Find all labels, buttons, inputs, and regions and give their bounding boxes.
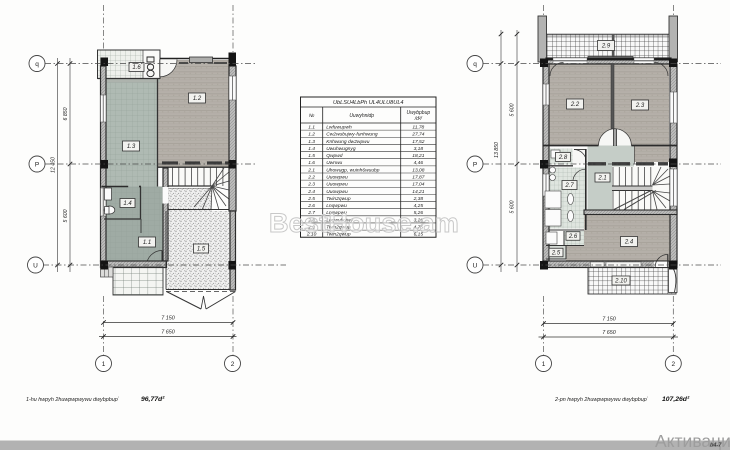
svg-text:2.9: 2.9 <box>601 44 611 50</box>
svg-text:2.2: 2.2 <box>570 102 580 108</box>
svg-text:Uuowpwu: Uuowpwu <box>326 174 348 180</box>
svg-text:1.6: 1.6 <box>132 65 141 71</box>
svg-text:5 600: 5 600 <box>510 200 516 213</box>
svg-text:14,21: 14,21 <box>412 189 425 195</box>
svg-text:1.4: 1.4 <box>308 146 315 152</box>
svg-text:1-hu hwpyh 2huwpwpwywu dwybpb: 1-hu hwpyh 2huwpwpwywu dwybpbup` <box>26 397 120 403</box>
svg-text:2.8: 2.8 <box>558 155 568 161</box>
svg-text:2.6: 2.6 <box>568 234 578 240</box>
svg-text:1.6: 1.6 <box>308 160 315 166</box>
svg-text:P: P <box>35 161 39 168</box>
svg-text:1.3: 1.3 <box>127 144 136 150</box>
svg-text:13 850: 13 850 <box>494 142 500 158</box>
svg-text:q: q <box>473 61 477 68</box>
svg-text:Uuowpwu: Uuowpwu <box>326 189 348 195</box>
svg-text:Qwpwd: Qwpwd <box>326 153 343 159</box>
svg-text:U: U <box>473 262 478 269</box>
svg-text:1.2: 1.2 <box>193 96 202 102</box>
svg-text:2.3: 2.3 <box>635 103 645 109</box>
svg-text:1: 1 <box>102 361 106 368</box>
svg-text:107,26d²: 107,26d² <box>662 396 690 403</box>
svg-text:13,08: 13,08 <box>412 167 425 173</box>
svg-text:2-pn hwpyh 2huwpwpwywu dwybpb: 2-pn hwpyh 2huwpwpwywu dwybpbup` <box>554 397 649 403</box>
svg-text:№: № <box>309 113 315 119</box>
svg-text:1.5: 1.5 <box>308 153 315 159</box>
svg-text:4,46: 4,46 <box>414 160 424 166</box>
svg-text:2.7: 2.7 <box>564 183 574 189</box>
svg-text:Uuwyhnidp: Uuwyhnidp <box>349 113 374 119</box>
svg-text:7 150: 7 150 <box>161 316 175 322</box>
svg-text:2.4: 2.4 <box>307 189 315 195</box>
svg-text:12 450: 12 450 <box>51 157 57 173</box>
svg-text:1.4: 1.4 <box>123 201 132 207</box>
svg-text:U: U <box>33 262 38 269</box>
svg-text:1: 1 <box>542 361 546 368</box>
svg-text:17,04: 17,04 <box>412 182 425 188</box>
svg-text:Uuowpwu: Uuowpwu <box>326 182 348 188</box>
svg-text:2.2: 2.2 <box>307 174 315 180</box>
svg-text:2.5: 2.5 <box>551 251 561 257</box>
svg-text:1.1: 1.1 <box>308 125 315 131</box>
svg-text:BestHouse.am: BestHouse.am <box>269 208 459 238</box>
svg-text:5 600: 5 600 <box>510 103 516 116</box>
svg-text:1.1: 1.1 <box>143 240 151 246</box>
svg-text:2.10: 2.10 <box>614 279 627 285</box>
svg-text:1.5: 1.5 <box>197 247 206 253</box>
svg-text:Lwfuwupwh: Lwfuwupwh <box>326 125 352 131</box>
svg-text:Knhwung dw2wpwu: Knhwung dw2wpwu <box>326 139 370 145</box>
svg-text:27,74: 27,74 <box>411 132 425 138</box>
svg-text:17,87: 17,87 <box>412 174 425 180</box>
svg-text:18,21: 18,21 <box>412 153 425 159</box>
svg-text:2.5: 2.5 <box>307 196 315 202</box>
svg-text:b4-7: b4-7 <box>710 443 722 449</box>
svg-text:96,77d²: 96,77d² <box>141 396 165 403</box>
svg-text:Uwuhwugnyg: Uwuhwugnyg <box>326 146 356 152</box>
svg-text:2.3: 2.3 <box>307 182 315 188</box>
svg-text:2: 2 <box>231 361 235 368</box>
svg-text:Uwnwu: Uwnwu <box>326 160 342 166</box>
svg-text:7 650: 7 650 <box>602 330 616 336</box>
svg-text:5 600: 5 600 <box>63 209 69 222</box>
svg-text:17,52: 17,52 <box>412 139 425 145</box>
svg-text:3,18: 3,18 <box>414 146 424 152</box>
svg-text:2.1: 2.1 <box>597 176 606 182</box>
svg-text:q: q <box>35 61 39 68</box>
svg-text:2.1: 2.1 <box>307 167 315 173</box>
svg-text:1.2: 1.2 <box>308 132 315 138</box>
svg-text:2,38: 2,38 <box>413 196 424 202</box>
svg-text:Twin2qwup: Twin2qwup <box>326 196 351 202</box>
svg-text:6 850: 6 850 <box>63 107 69 120</box>
svg-text:Cw2wubujwy-funhwung: Cw2wubujwy-funhwung <box>326 132 378 138</box>
svg-text:1.3: 1.3 <box>308 139 315 145</box>
svg-text:11,78: 11,78 <box>412 125 424 131</box>
svg-text:P: P <box>473 161 477 168</box>
svg-text:Uhowugp, wuinh6wuubp: Uhowugp, wuinh6wuubp <box>326 167 380 173</box>
svg-text:UbLSU4LbPh UL4ULU8UL4: UbLSU4LbPh UL4ULU8UL4 <box>333 100 404 106</box>
svg-text:7 150: 7 150 <box>602 317 616 323</box>
svg-text:2: 2 <box>671 361 675 368</box>
svg-text:7 650: 7 650 <box>161 330 175 336</box>
svg-text:/d²/: /d²/ <box>414 116 423 122</box>
svg-text:2.4: 2.4 <box>624 240 634 246</box>
